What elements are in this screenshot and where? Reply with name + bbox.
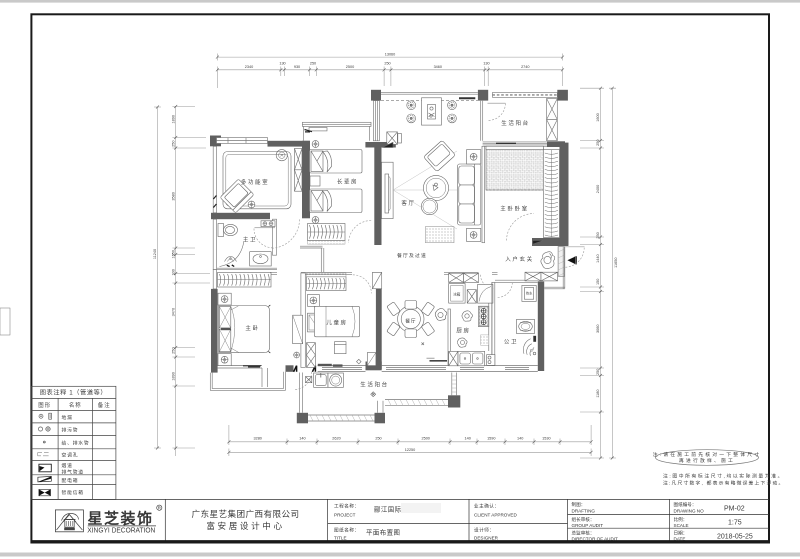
svg-text:图纸名称：: 图纸名称： bbox=[334, 527, 359, 534]
svg-text:富安居设计中心: 富安居设计中心 bbox=[206, 520, 284, 531]
svg-text:250: 250 bbox=[384, 62, 390, 66]
svg-text:2340: 2340 bbox=[245, 65, 253, 69]
svg-text:3580: 3580 bbox=[172, 192, 176, 200]
svg-text:注:凡尺寸数字, 都表示有略微误差上下浮动。: 注:凡尺寸数字, 都表示有略微误差上下浮动。 bbox=[663, 480, 785, 487]
svg-text:250: 250 bbox=[596, 140, 600, 146]
svg-text:PROJECT: PROJECT bbox=[334, 513, 356, 518]
svg-text:设计师：: 设计师： bbox=[474, 527, 494, 534]
svg-text:250: 250 bbox=[375, 436, 381, 440]
svg-text:烟道: 烟道 bbox=[62, 462, 73, 469]
svg-text:3280: 3280 bbox=[253, 436, 261, 440]
svg-text:2620: 2620 bbox=[332, 436, 340, 440]
svg-text:主卧卧室: 主卧卧室 bbox=[500, 205, 528, 213]
svg-text:郦江国际: 郦江国际 bbox=[374, 505, 402, 514]
svg-text:组长审核：: 组长审核： bbox=[572, 516, 595, 523]
svg-text:图纸编号：: 图纸编号： bbox=[674, 501, 697, 508]
svg-text:比例：: 比例： bbox=[674, 516, 688, 523]
svg-text:250: 250 bbox=[172, 348, 176, 354]
svg-text:140: 140 bbox=[517, 436, 523, 440]
svg-text:11650: 11650 bbox=[614, 258, 618, 268]
svg-text:热水: 热水 bbox=[526, 291, 533, 296]
svg-text:3060: 3060 bbox=[596, 325, 600, 333]
svg-text:名称: 名称 bbox=[69, 401, 82, 409]
svg-text:长辈房: 长辈房 bbox=[337, 178, 358, 186]
svg-text:DATE: DATE bbox=[674, 537, 686, 542]
svg-text:250: 250 bbox=[596, 232, 600, 238]
svg-text:3460: 3460 bbox=[434, 65, 442, 69]
svg-text:排污管: 排污管 bbox=[62, 427, 79, 434]
svg-text:130: 130 bbox=[483, 62, 489, 66]
svg-text:1180: 1180 bbox=[596, 390, 600, 398]
svg-text:2500: 2500 bbox=[421, 436, 429, 440]
svg-text:工程名称：: 工程名称： bbox=[334, 503, 359, 510]
svg-text:DRAWING NO: DRAWING NO bbox=[674, 509, 705, 514]
svg-text:生活阳台: 生活阳台 bbox=[360, 381, 388, 389]
svg-text:空调孔: 空调孔 bbox=[62, 452, 79, 459]
svg-text:公卫: 公卫 bbox=[504, 339, 518, 346]
svg-text:2400: 2400 bbox=[596, 185, 600, 193]
svg-text:2500: 2500 bbox=[346, 65, 354, 69]
svg-text:再进行放样、施工: 再进行放样、施工 bbox=[679, 457, 735, 464]
svg-text:图形: 图形 bbox=[38, 401, 51, 409]
svg-text:主卫: 主卫 bbox=[243, 236, 257, 244]
svg-text:DIRECTOR OF AUDIT: DIRECTOR OF AUDIT bbox=[572, 537, 619, 542]
svg-text:1890: 1890 bbox=[172, 372, 176, 380]
svg-text:DESIGNER: DESIGNER bbox=[474, 536, 499, 541]
svg-text:1:75: 1:75 bbox=[728, 520, 742, 527]
svg-text:配电箱: 配电箱 bbox=[62, 477, 79, 484]
svg-text:930: 930 bbox=[294, 65, 300, 69]
svg-text:250: 250 bbox=[172, 141, 176, 147]
svg-text:250: 250 bbox=[310, 62, 316, 66]
svg-text:1600: 1600 bbox=[596, 113, 600, 121]
svg-text:广东星艺集团广西有限公司: 广东星艺集团广西有限公司 bbox=[192, 508, 300, 519]
svg-text:儿童房: 儿童房 bbox=[326, 319, 347, 327]
svg-text:2740: 2740 bbox=[521, 65, 529, 69]
svg-text:TITLE: TITLE bbox=[334, 536, 347, 541]
svg-text:2018-05-25: 2018-05-25 bbox=[717, 534, 753, 541]
svg-text:DRAFTING: DRAFTING bbox=[572, 509, 596, 514]
svg-text:140: 140 bbox=[465, 436, 471, 440]
svg-text:主卧: 主卧 bbox=[245, 324, 259, 332]
svg-text:XINGYI DECORATION: XINGYI DECORATION bbox=[87, 526, 155, 535]
svg-text:GROUP AUDIT: GROUP AUDIT bbox=[572, 523, 604, 528]
svg-text:100: 100 bbox=[172, 269, 176, 275]
svg-text:地漏: 地漏 bbox=[62, 414, 73, 421]
svg-text:130: 130 bbox=[279, 62, 285, 66]
svg-text:图表注释 1（管道等）: 图表注释 1（管道等） bbox=[40, 389, 107, 397]
svg-text:厨房: 厨房 bbox=[456, 327, 470, 335]
svg-text:餐厅及过道: 餐厅及过道 bbox=[397, 252, 427, 259]
svg-text:140: 140 bbox=[299, 436, 305, 440]
svg-text:CLIENT APPROVED: CLIENT APPROVED bbox=[474, 513, 517, 518]
svg-text:13060: 13060 bbox=[385, 52, 396, 56]
svg-text:业主确认：: 业主确认： bbox=[474, 503, 499, 510]
svg-text:冰箱: 冰箱 bbox=[453, 292, 461, 297]
svg-text:生活阳台: 生活阳台 bbox=[501, 119, 529, 127]
svg-text:注:图中所有标注尺寸,均以实际测量为准。: 注:图中所有标注尺寸,均以实际测量为准。 bbox=[663, 473, 784, 480]
svg-text:备注: 备注 bbox=[98, 401, 111, 409]
svg-text:注:请在施工前先核对一下整体尺寸: 注:请在施工前先核对一下整体尺寸 bbox=[653, 451, 762, 458]
svg-text:1530: 1530 bbox=[542, 436, 550, 440]
svg-text:多功能室: 多功能室 bbox=[241, 178, 269, 186]
svg-text:12250: 12250 bbox=[405, 448, 416, 452]
svg-text:客厅: 客厅 bbox=[401, 199, 415, 207]
svg-text:排气管道: 排气管道 bbox=[62, 469, 84, 476]
svg-text:11240: 11240 bbox=[153, 249, 157, 259]
svg-text:总监审核：: 总监审核： bbox=[572, 530, 595, 537]
svg-text:1890: 1890 bbox=[172, 115, 176, 123]
svg-text:智能信箱: 智能信箱 bbox=[62, 489, 84, 496]
svg-text:给、排水管: 给、排水管 bbox=[62, 440, 90, 447]
svg-text:1440: 1440 bbox=[596, 254, 600, 262]
svg-text:平面布置图: 平面布置图 bbox=[366, 528, 400, 537]
svg-text:SCALE: SCALE bbox=[674, 523, 689, 528]
svg-text:250: 250 bbox=[596, 369, 600, 375]
svg-text:150: 150 bbox=[596, 279, 600, 285]
svg-text:1650: 1650 bbox=[172, 250, 176, 258]
svg-text:制图：: 制图： bbox=[572, 501, 586, 508]
svg-text:3470: 3470 bbox=[172, 308, 176, 316]
svg-text:餐厅: 餐厅 bbox=[405, 318, 416, 325]
svg-text:入户玄关: 入户玄关 bbox=[505, 255, 533, 263]
svg-text:1590: 1590 bbox=[487, 436, 495, 440]
svg-text:PM-02: PM-02 bbox=[724, 506, 745, 513]
